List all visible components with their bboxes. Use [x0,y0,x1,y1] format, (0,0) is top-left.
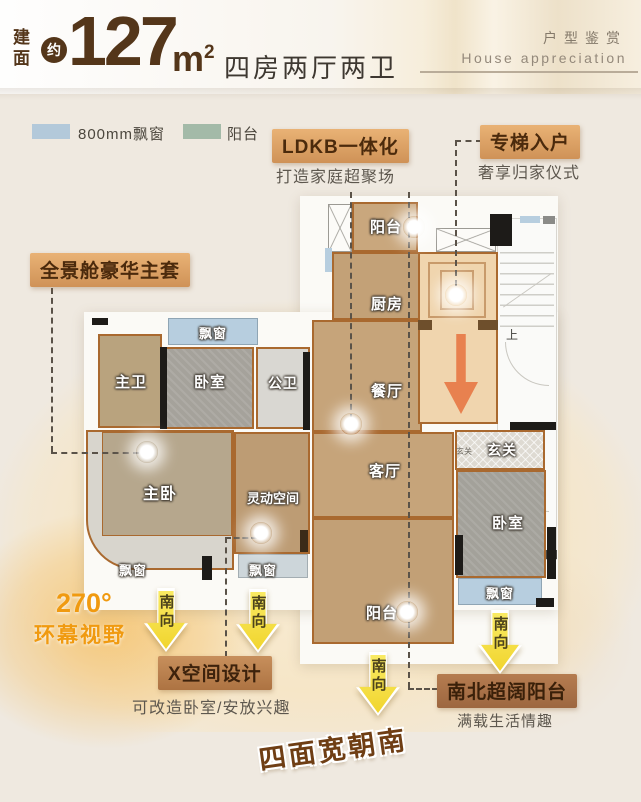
connector-flex-v [225,537,227,657]
connector-elevator-v [455,140,457,286]
glow-dot-icon [396,601,418,623]
wall-segment [510,422,556,430]
callout-xspace-subtitle: 可改造卧室/安放兴趣 [132,694,290,718]
section-title-en: House appreciation [461,50,627,66]
label-bay-right: 飘窗 [476,583,524,602]
callout-view-text: 环幕视野 [34,619,126,649]
callout-ldkb-subtitle: 打造家庭超聚场 [276,163,395,187]
label-flex-space: 灵动空间 [238,488,308,507]
callout-ns-balcony-title: 南北超阔阳台 [437,674,577,708]
bay-window-swatch-icon [32,124,70,139]
label-bay-top: 飘窗 [191,323,235,342]
approx-badge: 约 [41,37,67,63]
wall-segment [478,320,498,330]
area-unit-m: m [172,38,204,79]
layout-text: 四房两厅两卫 [224,48,398,85]
label-bay-flex: 飘窗 [240,560,286,579]
wall-segment [490,214,512,246]
wall-segment [455,535,463,575]
south-arrow-icon: 南向 [478,610,522,674]
label-bedroom-left: 卧室 [180,371,240,392]
glow-dot-icon [340,413,362,435]
connector-master-v [51,288,53,452]
callout-elevator-title: 专梯入户 [480,125,580,159]
south-arrow-label: 南向 [368,658,389,694]
south-arrow-icon: 南向 [356,652,400,716]
glow-dot-icon [445,284,467,306]
label-bay-master: 飘窗 [110,560,156,579]
area-prefix: 建面 [10,28,32,76]
callout-ns-balcony-subtitle: 满载生活情趣 [457,710,553,731]
callout-xspace-title: X空间设计 [158,656,272,690]
connector-ns-balcony-h [408,688,438,690]
floorplan-poster: 建面 约 127 m2 四房两厅两卫 户型鉴赏 House appreciati… [0,0,641,802]
stairs-up-label: 上 [506,326,518,343]
section-underline [420,71,638,73]
connector-ldkb-2 [408,192,410,608]
south-arrow-label: 南向 [156,594,177,630]
wall-segment [418,320,432,330]
area-value: 127 [68,6,176,76]
label-master-bedroom: 主卧 [130,480,190,504]
wall-segment [300,530,308,552]
room-balcony-bottom [312,518,454,644]
connector-ldkb-1 [350,192,352,420]
legend-balcony-label: 阳台 [227,123,259,144]
south-arrow-label: 南向 [490,616,511,652]
window-tick [520,216,540,223]
connector-elevator-h [455,140,482,142]
label-bedroom-right: 卧室 [478,512,538,533]
wall-segment [536,598,554,607]
connector-master-h [51,452,139,454]
wall-tick [543,216,555,224]
section-title-cn: 户型鉴赏 [543,28,627,48]
label-foyer-small: 玄关 [456,446,472,457]
callout-master-suite-title: 全景舱豪华主套 [30,253,190,287]
area-unit: m2 [172,38,215,80]
callout-ldkb-title: LDKB一体化 [272,129,409,163]
label-foyer: 玄关 [478,440,526,460]
callout-elevator-subtitle: 奢享归家仪式 [478,159,580,183]
window-tick [325,248,332,272]
stairs-icon [500,252,554,336]
area-unit-sup: 2 [204,42,215,63]
room-dining [312,320,422,432]
legend-bay-window-label: 800mm飘窗 [78,123,165,144]
wall-segment [92,318,108,325]
wall-segment [547,527,556,579]
wall-segment [160,347,167,429]
wall-segment [202,556,212,580]
header-shadow [0,88,641,100]
glow-dot-icon [403,216,425,238]
label-living: 客厅 [355,460,415,481]
balcony-swatch-icon [183,124,221,139]
glow-dot-icon [250,522,272,544]
glow-dot-icon [136,441,158,463]
label-master-bath: 主卫 [106,371,156,392]
south-arrow-icon: 南向 [236,589,280,653]
ac-unit-icon [436,228,496,252]
label-public-bath: 公卫 [258,373,308,393]
south-arrow-icon: 南向 [144,588,188,652]
connector-ns-balcony-v [408,622,410,688]
callout-view-degree: 270° [56,588,112,619]
ac-unit-icon [328,204,352,252]
south-arrow-label: 南向 [248,595,269,631]
